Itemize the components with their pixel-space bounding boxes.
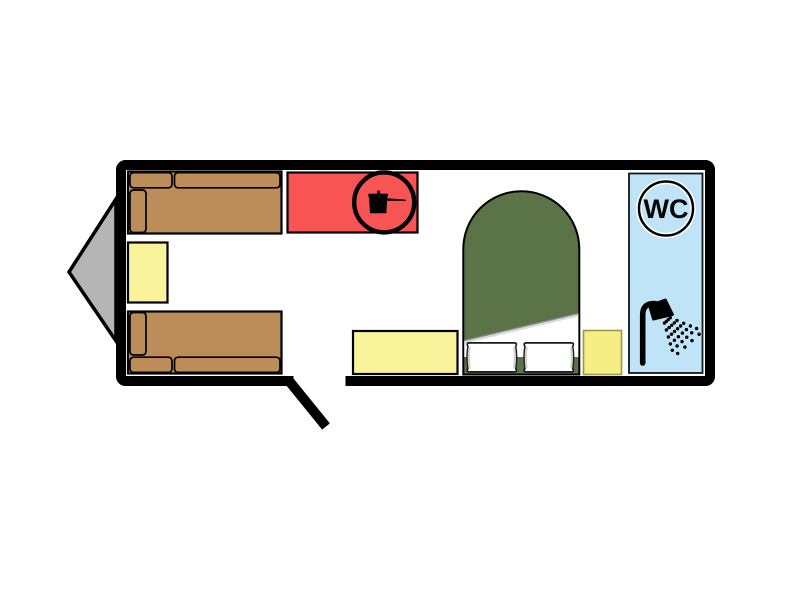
svg-text:WC: WC xyxy=(644,194,689,224)
